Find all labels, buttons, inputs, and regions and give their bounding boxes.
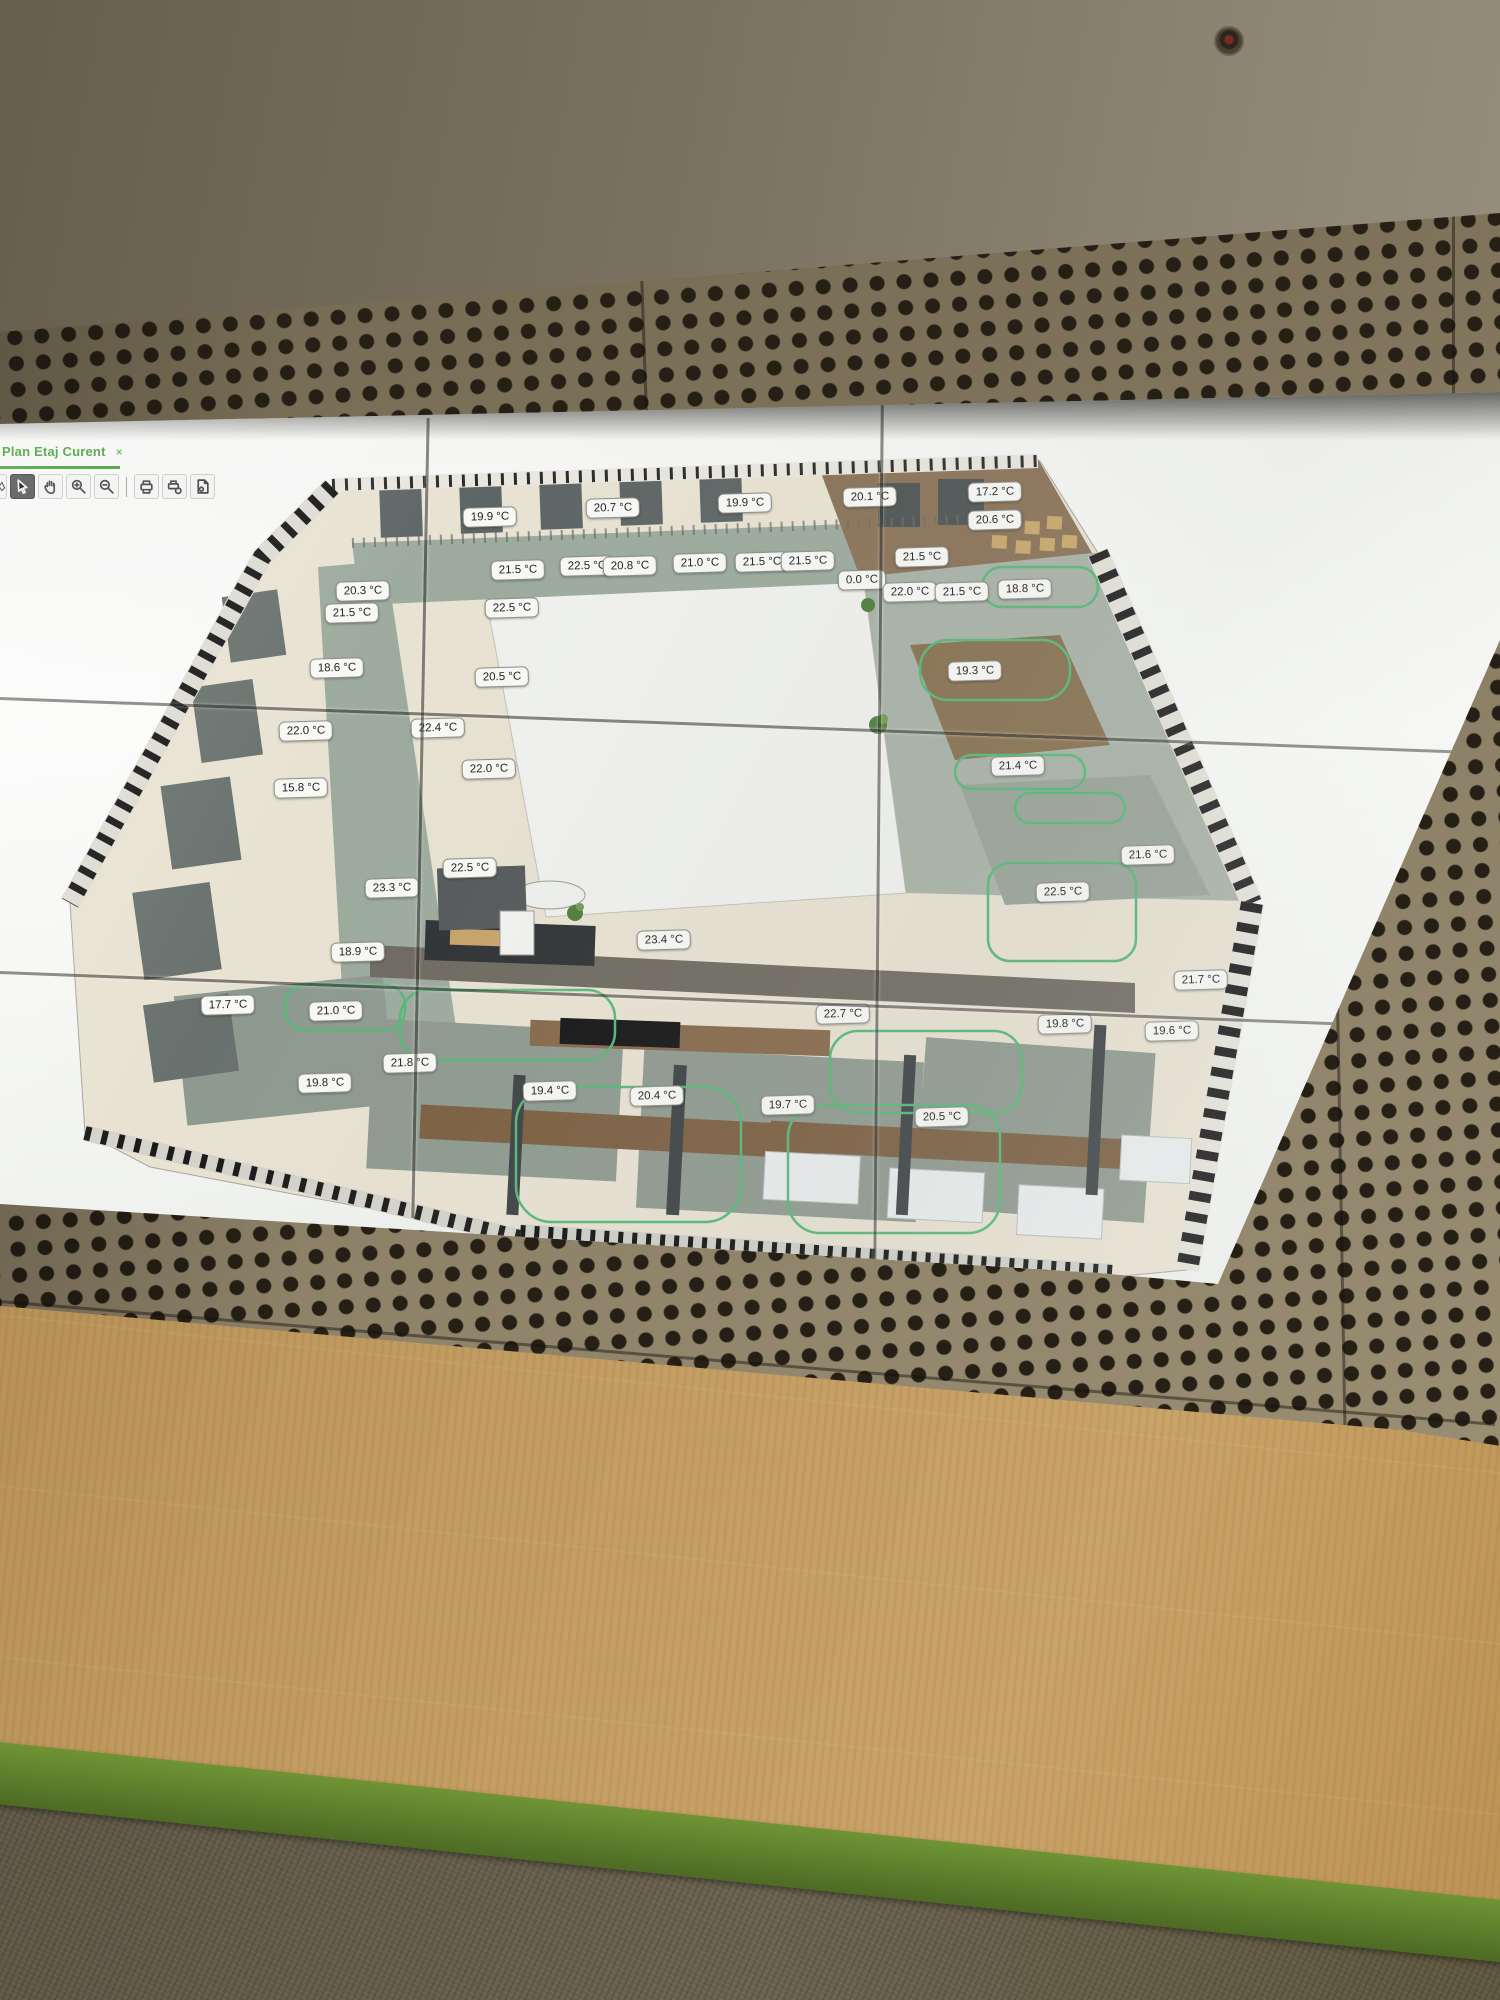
temp-label: 20.5 °C <box>474 666 529 688</box>
temp-label: 19.6 °C <box>1144 1020 1199 1042</box>
temp-label: 20.5 °C <box>914 1106 969 1128</box>
temp-label: 22.5 °C <box>1035 881 1090 903</box>
temp-label: 19.8 °C <box>297 1072 352 1094</box>
temp-label: 19.7 °C <box>760 1094 815 1116</box>
clipped-edge-tool[interactable] <box>0 474 7 499</box>
temp-label: 21.5 °C <box>324 602 379 624</box>
temp-label: 19.9 °C <box>717 492 772 514</box>
print-tool-button[interactable] <box>134 474 159 499</box>
tab-close-icon[interactable]: × <box>116 445 123 459</box>
temp-label: 18.9 °C <box>330 941 385 963</box>
temp-label: 21.7 °C <box>1173 969 1228 991</box>
print-setup-tool-button[interactable] <box>162 474 187 499</box>
select-tool-button[interactable] <box>10 474 35 499</box>
temp-label: 22.5 °C <box>484 597 539 619</box>
temp-label: 20.4 °C <box>629 1085 684 1107</box>
temp-label: 23.3 °C <box>364 877 419 899</box>
temp-label: 22.5 °C <box>442 857 497 879</box>
temp-label: 22.4 °C <box>410 717 465 739</box>
pan-tool-button[interactable] <box>38 474 63 499</box>
temp-label: 21.5 °C <box>780 550 835 572</box>
temp-label: 22.0 °C <box>461 758 516 780</box>
zoom-out-tool-button[interactable] <box>94 474 119 499</box>
temp-label: 21.8 °C <box>382 1052 437 1074</box>
temp-label: 20.8 °C <box>602 555 657 577</box>
temp-label: 18.6 °C <box>309 657 364 679</box>
tab-title: Plan Etaj Curent <box>2 444 106 459</box>
tab-plan-etaj-curent[interactable]: Plan Etaj Curent × <box>2 444 123 459</box>
temp-label: 22.0 °C <box>882 581 937 603</box>
sprinkler-head <box>1216 28 1242 54</box>
temp-label: 21.0 °C <box>672 552 727 574</box>
temp-label: 20.7 °C <box>585 497 640 519</box>
temp-label: 20.6 °C <box>967 509 1022 531</box>
temp-label: 21.4 °C <box>990 755 1045 777</box>
temp-label: 21.5 °C <box>894 546 949 568</box>
floor-plan-canvas[interactable] <box>30 425 1290 1325</box>
temp-label: 21.0 °C <box>308 1000 363 1022</box>
temp-label: 18.8 °C <box>997 578 1052 600</box>
temp-label: 20.3 °C <box>335 580 390 602</box>
temp-label: 19.9 °C <box>462 506 517 528</box>
toolbar <box>0 474 215 499</box>
temp-label: 22.0 °C <box>278 720 333 742</box>
toolbar-separator <box>126 477 127 497</box>
temp-label: 23.4 °C <box>636 929 691 951</box>
temp-label: 19.3 °C <box>947 660 1002 682</box>
temp-label: 15.8 °C <box>273 777 328 799</box>
photo-of-video-wall: 19.9 °C20.7 °C19.9 °C20.1 °C17.2 °C20.6 … <box>0 0 1500 2000</box>
temp-label: 20.1 °C <box>842 486 897 508</box>
temp-label: 21.6 °C <box>1120 844 1175 866</box>
zoom-in-tool-button[interactable] <box>66 474 91 499</box>
temp-label: 21.5 °C <box>934 581 989 603</box>
temp-label: 17.7 °C <box>200 994 255 1016</box>
temp-label: 17.2 °C <box>967 481 1022 503</box>
temp-label: 21.5 °C <box>490 559 545 581</box>
temp-label: 19.4 °C <box>522 1080 577 1102</box>
temp-label: 19.8 °C <box>1037 1013 1092 1035</box>
courtyard <box>482 553 906 917</box>
tab-active-underline <box>0 466 120 469</box>
page-preview-tool-button[interactable] <box>190 474 215 499</box>
